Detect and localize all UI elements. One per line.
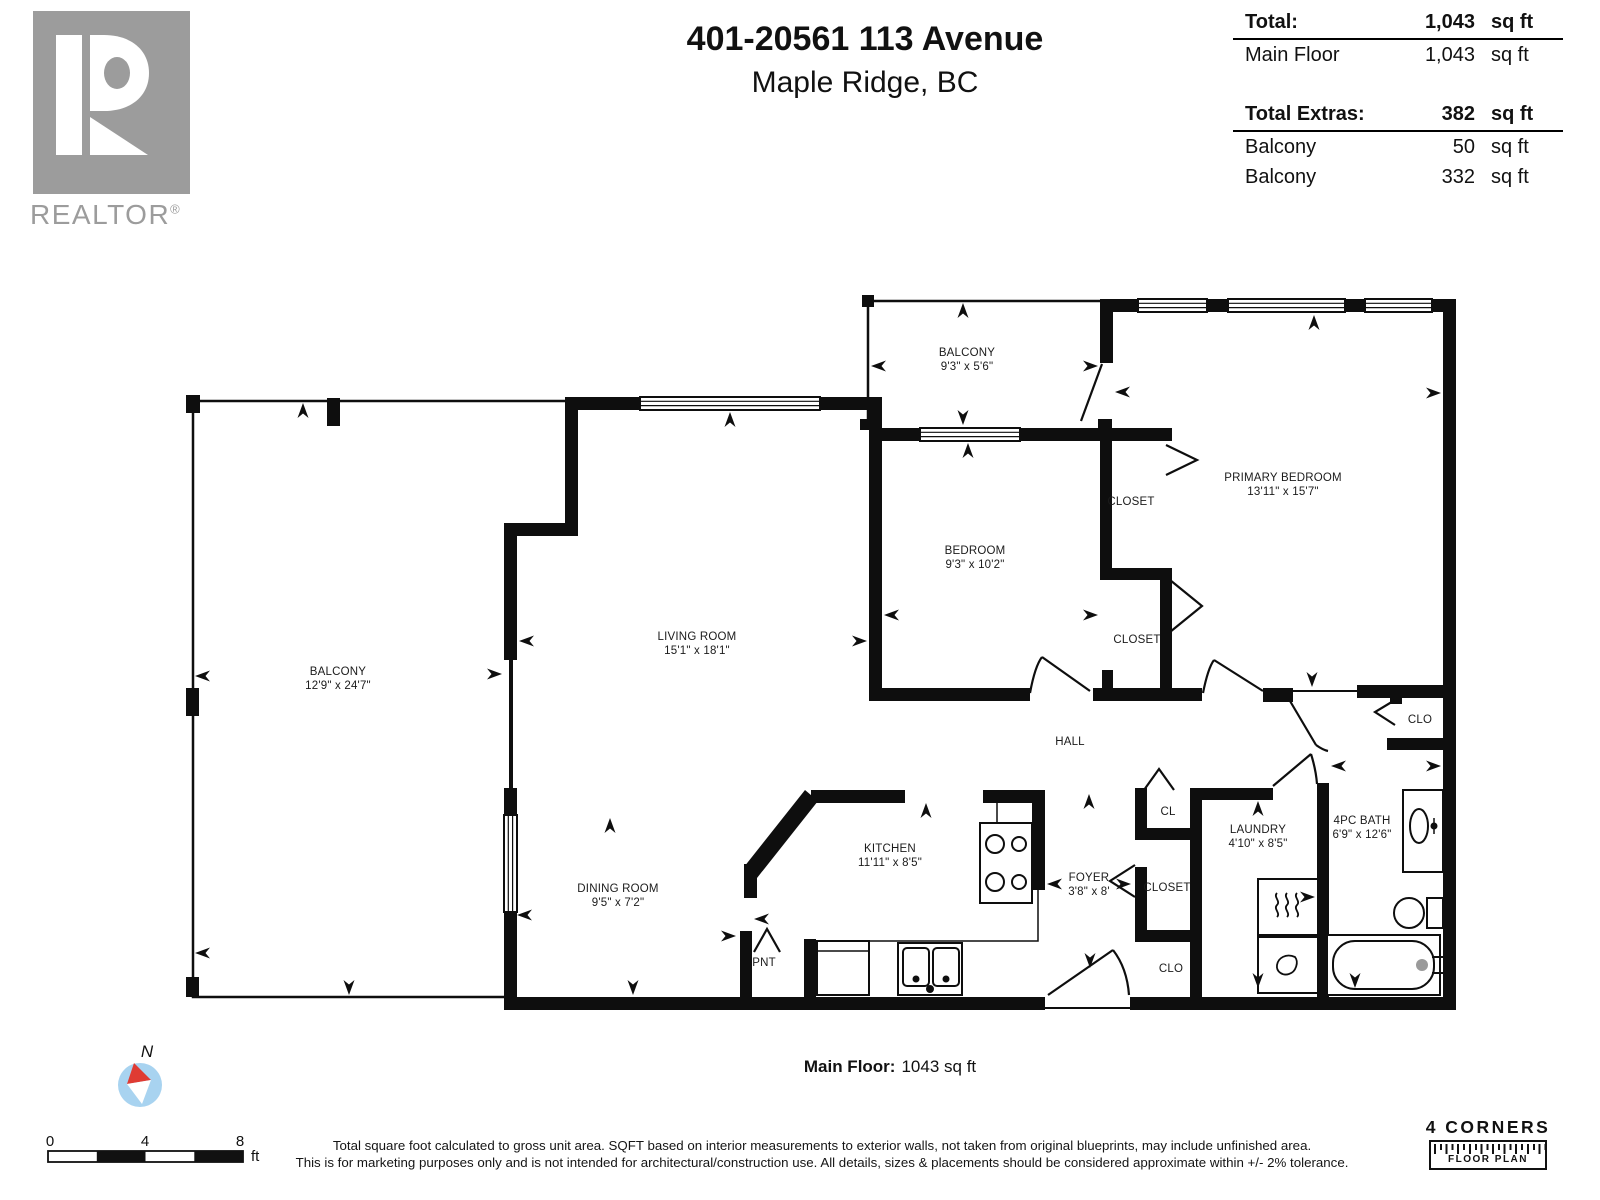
floor-caption: Main Floor:1043 sq ft xyxy=(804,1057,976,1077)
label-clo-bottom: CLO xyxy=(1159,963,1183,975)
label-clo-right: CLO xyxy=(1408,714,1432,726)
toilet-icon xyxy=(1394,898,1443,928)
brand-name: 4 CORNERS xyxy=(1426,1117,1551,1138)
scale-unit: ft xyxy=(251,1148,259,1165)
scale-tick-0: 0 xyxy=(46,1133,54,1150)
room-label-dining-room: DINING ROOM9'5" x 7'2" xyxy=(577,882,658,910)
page-title: 401-20561 113 Avenue xyxy=(687,20,1044,59)
disclaimer-line-2: This is for marketing purposes only and … xyxy=(296,1155,1349,1170)
bathroom-sink-icon xyxy=(1403,790,1443,872)
stats-row-balcony-2: Balcony 332 sq ft xyxy=(1233,162,1563,192)
stats-row-balcony-1: Balcony 50 sq ft xyxy=(1233,132,1563,162)
label-closet-top: CLOSET xyxy=(1107,496,1154,508)
label-closet-mid: CLOSET xyxy=(1113,634,1160,646)
scale-tick-8: 8 xyxy=(236,1133,244,1150)
label-cl: CL xyxy=(1160,806,1175,818)
room-label-foyer: FOYER3'8" x 8' xyxy=(1068,871,1110,899)
room-label-bedroom: BEDROOM9'3" x 10'2" xyxy=(945,544,1006,572)
scale-tick-4: 4 xyxy=(141,1133,149,1150)
stats-row-main-floor: Main Floor 1,043 sq ft xyxy=(1233,40,1563,70)
area-stats-table: Total: 1,043 sq ft Main Floor 1,043 sq f… xyxy=(1233,7,1563,192)
room-label-bath: 4PC BATH6'9" x 12'6" xyxy=(1332,814,1391,842)
floorplan-page: REALTOR® 401-20561 113 Avenue Maple Ridg… xyxy=(0,0,1600,1200)
washer-icon xyxy=(1258,937,1318,993)
scale-bar xyxy=(48,1151,243,1162)
disclaimer-line-1: Total square foot calculated to gross un… xyxy=(333,1138,1311,1153)
bathtub-icon xyxy=(1327,935,1443,995)
dishwasher-icon xyxy=(817,941,869,995)
room-label-laundry: LAUNDRY4'10" x 8'5" xyxy=(1228,823,1287,851)
brand-ruler-ticks-short xyxy=(1440,1144,1545,1150)
realtor-wordmark: REALTOR® xyxy=(30,199,181,231)
stats-row-total: Total: 1,043 sq ft xyxy=(1233,7,1563,40)
realtor-logo-icon xyxy=(33,11,190,194)
page-subtitle: Maple Ridge, BC xyxy=(752,66,979,100)
kitchen-sink-icon xyxy=(898,943,962,995)
room-label-primary-bedroom: PRIMARY BEDROOM13'11" x 15'7" xyxy=(1224,471,1342,499)
room-label-kitchen: KITCHEN11'11" x 8'5" xyxy=(858,842,922,870)
room-label-balcony-top: BALCONY9'3" x 5'6" xyxy=(939,346,995,374)
compass-icon xyxy=(118,1063,162,1107)
stats-row-total-extras: Total Extras: 382 sq ft xyxy=(1233,99,1563,132)
room-label-balcony-left: BALCONY12'9" x 24'7" xyxy=(305,665,371,693)
brand-sub: FLOOR PLAN xyxy=(1448,1154,1528,1165)
label-pnt: PNT xyxy=(752,957,776,969)
room-label-living-room: LIVING ROOM15'1" x 18'1" xyxy=(658,630,737,658)
dryer-icon xyxy=(1258,879,1318,935)
windows xyxy=(504,299,1432,912)
label-hall: HALL xyxy=(1055,736,1085,748)
compass-n-label: N xyxy=(141,1042,153,1062)
label-closet-foyer: CLOSET xyxy=(1143,882,1190,894)
stove-icon xyxy=(980,803,1032,903)
